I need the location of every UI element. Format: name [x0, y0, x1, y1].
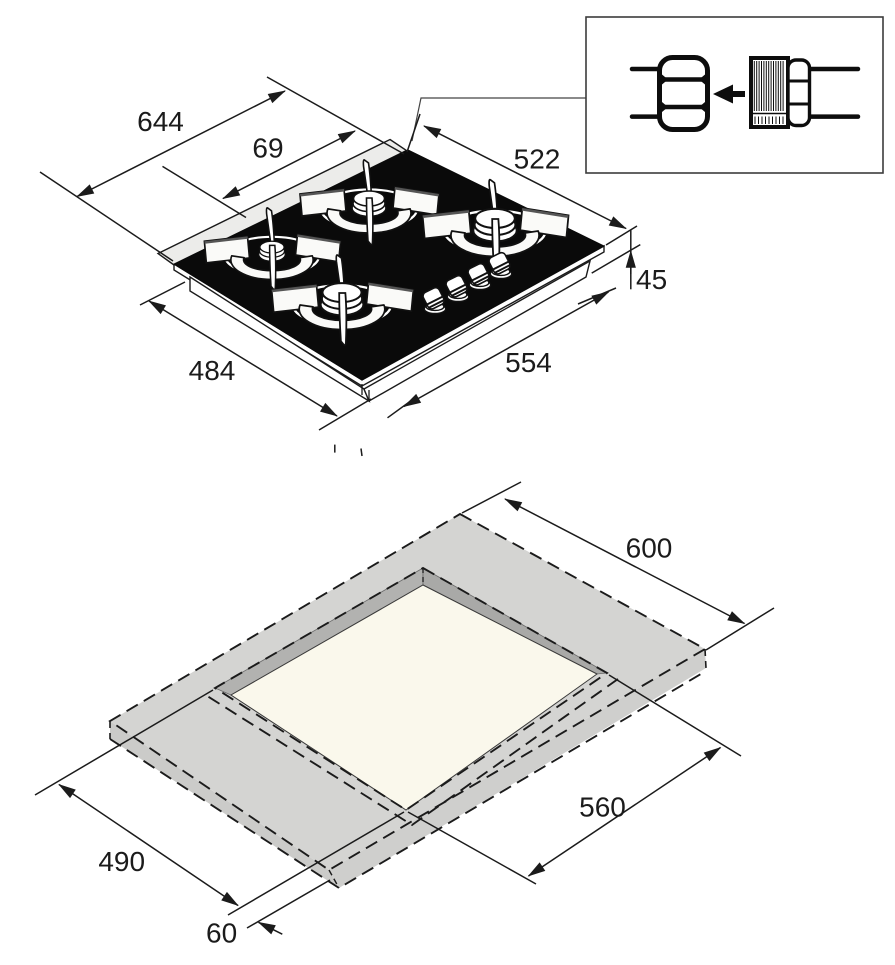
svg-text:484: 484 [189, 355, 236, 386]
svg-text:560: 560 [579, 792, 626, 823]
svg-text:554: 554 [505, 347, 552, 378]
svg-text:60: 60 [206, 918, 237, 949]
svg-text:490: 490 [98, 846, 145, 877]
svg-text:644: 644 [137, 106, 184, 137]
svg-text:600: 600 [626, 533, 673, 564]
svg-text:522: 522 [514, 144, 561, 175]
svg-text:45: 45 [636, 264, 667, 295]
svg-text:69: 69 [252, 133, 283, 164]
